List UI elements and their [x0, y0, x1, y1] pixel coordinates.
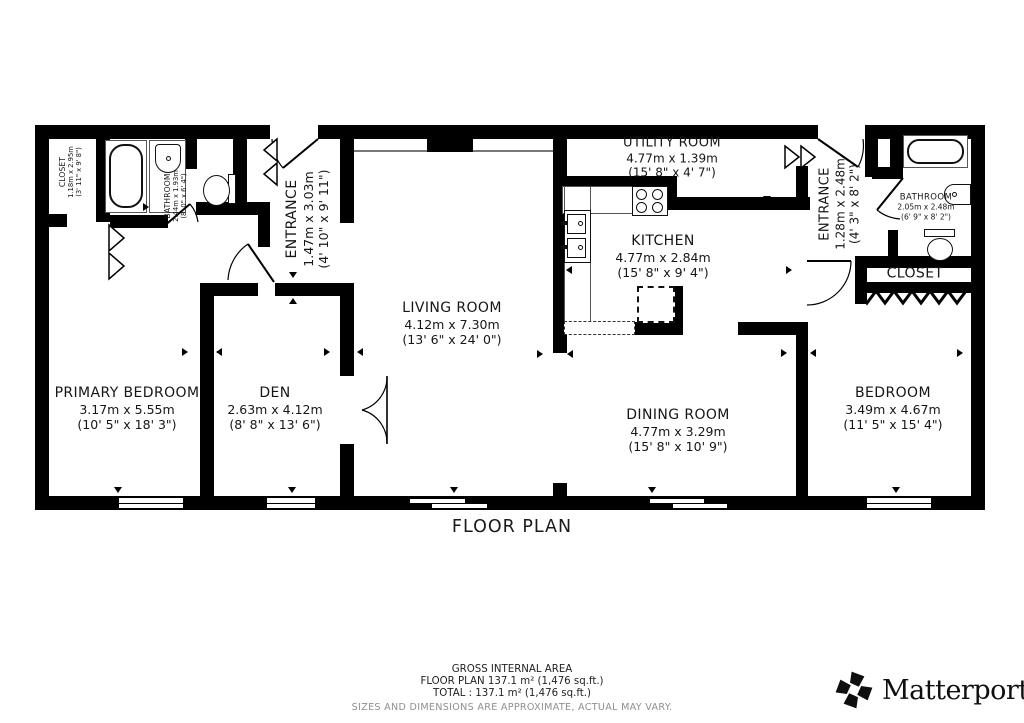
matterport-wordmark: Matterport®: [882, 675, 1024, 706]
dimension-tick: [324, 348, 330, 356]
window: [866, 497, 932, 509]
room-label-closet-left: CLOSET 1.18m x 2.95m (3' 11" x 9' 8"): [58, 146, 84, 198]
window-pane: [431, 503, 488, 509]
room-label-utility-room: UTILITY ROOM 4.77m x 1.39m (15' 8" x 4' …: [623, 135, 721, 180]
closet-rail-bracket: [908, 284, 917, 292]
dimension-tick: [114, 487, 122, 493]
dimension-tick: [357, 348, 363, 356]
dimension-tick: [781, 349, 787, 357]
dimension-tick: [810, 349, 816, 357]
door-bedroom: [807, 261, 851, 305]
room-label-bathroom-right: BATHROOM 2.05m x 2.48m (6' 9" x 8' 2"): [897, 193, 954, 222]
dimension-tick: [288, 487, 296, 493]
window-pane: [267, 503, 315, 504]
window-pane: [867, 503, 931, 504]
room-label-living-room: LIVING ROOM 4.12m x 7.30m (13' 6" x 24' …: [402, 300, 502, 348]
dimension-tick: [763, 196, 771, 202]
dimension-tick: [459, 141, 467, 147]
room-label-entrance-left: ENTRANCE 1.47m x 3.03m (4' 10" x 9' 11"): [284, 169, 332, 268]
bifold-door-closet-left-icon: [109, 225, 124, 279]
closet-rail-bracket: [872, 284, 881, 292]
room-label-kitchen: KITCHEN 4.77m x 2.84m (15' 8" x 9' 4"): [615, 233, 710, 281]
dimension-tick: [537, 350, 543, 358]
dimension-tick: [182, 348, 188, 356]
closet-hanger-zigzag-icon: [858, 291, 966, 303]
dimension-tick: [648, 487, 656, 493]
room-label-bathroom-left: BATHROOM 2.44m x 1.93m (8' 0" x 6' 4"): [163, 170, 189, 222]
dimension-tick: [143, 203, 149, 211]
matterport-pinwheel-icon: [834, 670, 874, 710]
dimension-tick: [892, 487, 900, 493]
door-symbols-overlay: [0, 0, 1024, 723]
dimension-tick: [289, 272, 297, 278]
dimension-tick: [786, 266, 792, 274]
door-hallway: [228, 244, 274, 282]
window: [266, 497, 316, 509]
room-label-den: DEN 2.63m x 4.12m (8' 8" x 13' 6"): [227, 385, 322, 433]
floor-plan-canvas: CLOSET 1.18m x 2.95m (3' 11" x 9' 8") BA…: [0, 0, 1024, 723]
door-entrance-left: [272, 139, 318, 168]
dimension-tick: [289, 298, 297, 304]
dimension-tick: [566, 266, 572, 274]
room-label-entrance-right: ENTRANCE 1.28m x 2.48m (4' 3" x 8' 2"): [817, 158, 862, 250]
bifold-door-entrance-left-icon: [264, 139, 277, 185]
room-label-bedroom: BEDROOM 3.49m x 4.67m (11' 5" x 15' 4"): [843, 385, 942, 433]
closet-rail-bracket: [944, 284, 953, 292]
room-label-dining-room: DINING ROOM 4.77m x 3.29m (15' 8" x 10' …: [626, 407, 730, 455]
dimension-tick: [763, 130, 771, 136]
room-label-closet-right: CLOSET: [887, 265, 944, 282]
dimension-tick: [38, 348, 44, 356]
window-pane: [672, 503, 728, 509]
matterport-logo: Matterport®: [834, 670, 1024, 710]
window: [118, 497, 184, 509]
dimension-tick: [957, 349, 963, 357]
dimension-tick: [216, 348, 222, 356]
bifold-door-utility-icon: [785, 146, 815, 168]
window-pane: [119, 503, 183, 504]
room-label-primary-bedroom: PRIMARY BEDROOM 3.17m x 5.55m (10' 5" x …: [55, 385, 200, 433]
dimension-tick: [450, 487, 458, 493]
double-door-den: [362, 376, 387, 444]
dimension-tick: [567, 350, 573, 358]
